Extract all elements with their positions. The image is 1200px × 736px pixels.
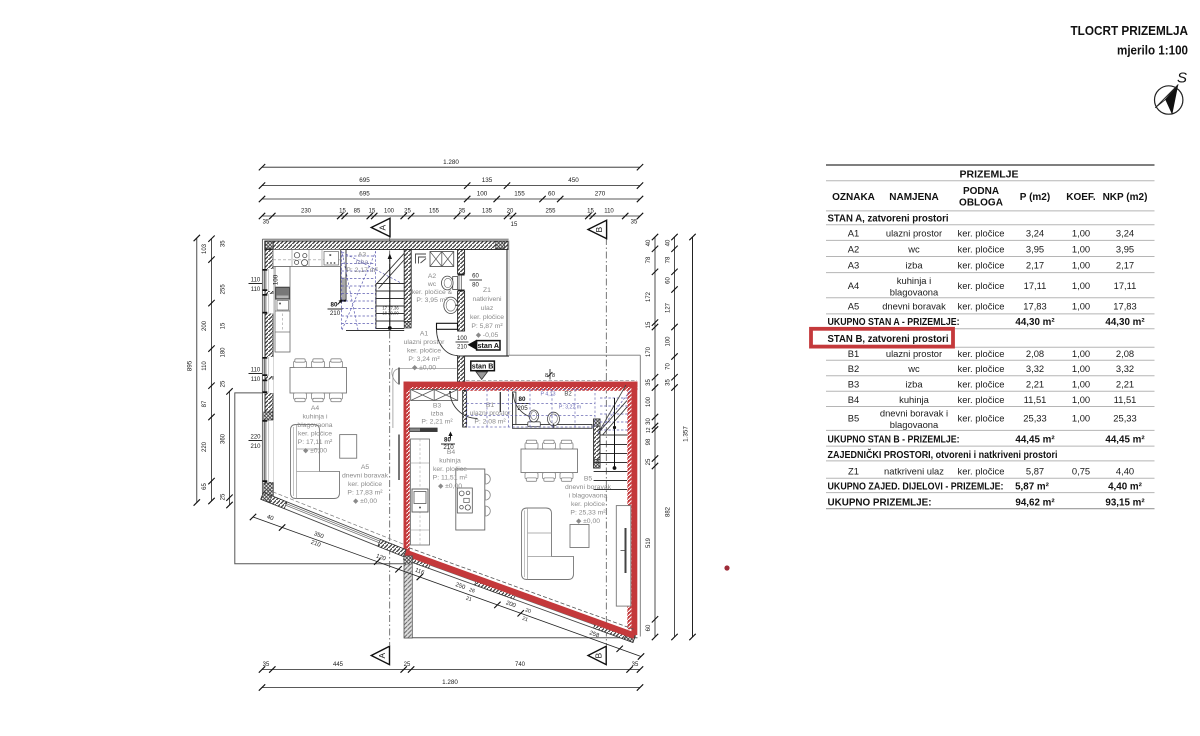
- svg-text:5,87: 5,87: [1026, 466, 1044, 477]
- svg-text:◆ ±0,00: ◆ ±0,00: [353, 498, 377, 505]
- svg-text:25: 25: [221, 493, 227, 500]
- svg-text:35: 35: [263, 662, 270, 668]
- svg-text:P: 3,95 m²: P: 3,95 m²: [416, 297, 448, 304]
- svg-text:A4: A4: [311, 405, 320, 412]
- svg-text:40: 40: [665, 239, 671, 246]
- svg-text:ker. pločice: ker. pločice: [958, 259, 1005, 270]
- svg-text:11,51: 11,51: [1024, 394, 1047, 405]
- svg-text:dnevni boravak: dnevni boravak: [342, 473, 389, 480]
- svg-text:izba: izba: [431, 411, 444, 418]
- svg-text:P: 17,11 m²: P: 17,11 m²: [298, 439, 333, 446]
- svg-text:4,40 m²: 4,40 m²: [1108, 482, 1143, 493]
- svg-text:80: 80: [519, 396, 526, 403]
- svg-text:B3: B3: [433, 403, 442, 410]
- svg-text:2,21: 2,21: [1116, 379, 1134, 390]
- svg-text:wc: wc: [427, 281, 437, 288]
- svg-text:ker. pločice: ker. pločice: [958, 363, 1005, 374]
- svg-text:1.280: 1.280: [443, 159, 459, 166]
- svg-text:kuhinja: kuhinja: [439, 458, 461, 465]
- svg-text:100: 100: [272, 274, 279, 285]
- svg-text:11,51: 11,51: [1114, 394, 1137, 405]
- svg-text:35: 35: [459, 209, 466, 215]
- svg-text:205: 205: [517, 405, 528, 412]
- svg-text:110: 110: [604, 209, 614, 215]
- svg-text:◆ -0,05: ◆ -0,05: [476, 332, 499, 339]
- svg-text:255: 255: [545, 209, 556, 215]
- svg-text:P: 2,17 m²: P: 2,17 m²: [346, 267, 378, 274]
- svg-text:2,17: 2,17: [1116, 259, 1134, 270]
- svg-text:izba: izba: [356, 259, 369, 266]
- svg-text:15: 15: [221, 322, 227, 329]
- svg-text:1,00: 1,00: [1072, 348, 1090, 359]
- svg-text:25: 25: [221, 380, 227, 387]
- svg-text:PODNA: PODNA: [963, 186, 999, 197]
- svg-text:695: 695: [359, 177, 370, 184]
- svg-text:15: 15: [511, 222, 518, 228]
- svg-text:ZAJEDNIČKI PROSTORI, otvoreni: ZAJEDNIČKI PROSTORI, otvoreni i natkrive…: [828, 449, 1058, 461]
- svg-text:695: 695: [359, 191, 370, 198]
- svg-text:740: 740: [515, 662, 526, 668]
- svg-text:15: 15: [369, 209, 376, 215]
- svg-text:kuhinja: kuhinja: [899, 394, 929, 405]
- svg-text:180: 180: [221, 347, 227, 358]
- svg-text:100: 100: [665, 336, 671, 347]
- svg-text:natkriveni ulaz: natkriveni ulaz: [884, 466, 944, 477]
- svg-text:17,83: 17,83: [1113, 301, 1136, 312]
- svg-text:Z1: Z1: [848, 466, 859, 477]
- svg-text:155: 155: [514, 191, 525, 198]
- svg-text:94,62 m²: 94,62 m²: [1015, 497, 1055, 508]
- svg-text:60: 60: [665, 277, 671, 284]
- svg-text:dnevni boravak i: dnevni boravak i: [880, 408, 948, 419]
- svg-text:44,30 m²: 44,30 m²: [1105, 317, 1145, 328]
- svg-text:STAN A, zatvoreni prostori: STAN A, zatvoreni prostori: [828, 214, 949, 225]
- svg-text:stan A: stan A: [478, 342, 499, 350]
- svg-text:80: 80: [472, 283, 479, 289]
- svg-text:1,00: 1,00: [1072, 379, 1090, 390]
- svg-text:3,32: 3,32: [1116, 363, 1134, 374]
- svg-text:ker. pločice: ker. pločice: [958, 466, 1005, 477]
- svg-text:100: 100: [646, 396, 652, 407]
- svg-text:93,15 m²: 93,15 m²: [1105, 497, 1145, 508]
- svg-text:5,87 m²: 5,87 m²: [1015, 482, 1050, 493]
- svg-text:2,08: 2,08: [1026, 348, 1044, 359]
- svg-text:ker. pločice: ker. pločice: [298, 431, 332, 438]
- svg-text:S: S: [1177, 70, 1187, 87]
- svg-text:445: 445: [333, 662, 344, 668]
- svg-text:ker. pločice &: ker. pločice &: [412, 289, 453, 296]
- svg-text:12: 12: [646, 427, 652, 433]
- svg-text:1,00: 1,00: [1072, 413, 1090, 424]
- svg-text:A4: A4: [848, 280, 859, 291]
- svg-text:100: 100: [477, 191, 488, 198]
- svg-text:izba: izba: [905, 259, 923, 270]
- svg-text:103: 103: [202, 243, 208, 254]
- svg-text:2,21: 2,21: [1026, 379, 1044, 390]
- svg-text:ker. pločice: ker. pločice: [958, 348, 1005, 359]
- svg-text:1,00: 1,00: [1072, 228, 1090, 239]
- svg-text:PRIZEMLJE: PRIZEMLJE: [960, 169, 1019, 181]
- svg-text:44,45 m²: 44,45 m²: [1105, 435, 1145, 446]
- svg-text:60: 60: [472, 274, 479, 280]
- svg-text:wc: wc: [907, 243, 920, 254]
- svg-text:wc: wc: [907, 363, 920, 374]
- svg-text:P: 17,83 m²: P: 17,83 m²: [347, 490, 383, 497]
- svg-text:B5: B5: [584, 476, 593, 483]
- svg-text:110: 110: [251, 278, 261, 284]
- svg-text:35: 35: [665, 379, 671, 386]
- svg-text:200: 200: [202, 320, 208, 331]
- svg-text:35: 35: [221, 240, 227, 247]
- svg-text:◆ ±0,00: ◆ ±0,00: [438, 483, 462, 490]
- svg-text:P (m2): P (m2): [1020, 192, 1050, 203]
- svg-text:UKUPNO STAN A - PRIZEMLJE:: UKUPNO STAN A - PRIZEMLJE:: [828, 317, 960, 328]
- svg-text:ker. pločice: ker. pločice: [958, 379, 1005, 390]
- svg-text:TLOCRT PRIZEMLJA: TLOCRT PRIZEMLJA: [1071, 23, 1189, 38]
- svg-text:ker. pločice: ker. pločice: [958, 301, 1005, 312]
- svg-text:ker. pločice: ker. pločice: [958, 280, 1005, 291]
- svg-text:A1: A1: [420, 331, 429, 338]
- svg-text:155: 155: [429, 209, 440, 215]
- svg-text:60: 60: [548, 191, 556, 198]
- svg-text:25,33: 25,33: [1113, 413, 1136, 424]
- svg-text:15: 15: [587, 209, 594, 215]
- svg-text:UKUPNO PRIZEMLJE:: UKUPNO PRIZEMLJE:: [828, 497, 932, 508]
- svg-text:18 29,00: 18 29,00: [382, 311, 399, 316]
- svg-text:8: 8: [552, 373, 555, 379]
- svg-text:35: 35: [646, 379, 652, 386]
- svg-text:A3: A3: [358, 252, 367, 259]
- svg-text:izba: izba: [905, 379, 923, 390]
- svg-text:Z1: Z1: [483, 287, 491, 294]
- svg-text:ker. pločice: ker. pločice: [407, 348, 441, 355]
- svg-text:◆ ±0,00: ◆ ±0,00: [303, 448, 327, 455]
- svg-text:135: 135: [482, 177, 493, 184]
- svg-text:1,00: 1,00: [1072, 394, 1090, 405]
- svg-text:P: 3,22 m: P: 3,22 m: [559, 405, 581, 411]
- svg-text:3,95: 3,95: [1116, 243, 1134, 254]
- svg-text:210: 210: [330, 310, 341, 317]
- svg-text:127: 127: [665, 302, 671, 313]
- svg-text:NAMJENA: NAMJENA: [889, 192, 938, 203]
- svg-text:ker. pločice: ker. pločice: [470, 314, 504, 321]
- svg-text:895: 895: [187, 360, 194, 371]
- svg-text:1,00: 1,00: [1072, 280, 1090, 291]
- svg-text:135: 135: [482, 209, 493, 215]
- svg-text:519: 519: [646, 537, 652, 548]
- svg-text:B1: B1: [848, 348, 859, 359]
- svg-text:OZNAKA: OZNAKA: [832, 192, 875, 203]
- svg-text:100: 100: [457, 336, 468, 342]
- svg-text:172: 172: [646, 291, 652, 302]
- svg-text:i blagovaona: i blagovaona: [569, 493, 608, 500]
- svg-text:1,00: 1,00: [1072, 363, 1090, 374]
- svg-text:3,32: 3,32: [1026, 363, 1044, 374]
- svg-text:1,00: 1,00: [1072, 259, 1090, 270]
- svg-text:1,00: 1,00: [1072, 301, 1090, 312]
- svg-text:B: B: [594, 653, 604, 659]
- svg-text:3,24: 3,24: [1116, 228, 1134, 239]
- svg-text:255: 255: [221, 284, 227, 295]
- svg-text:A1: A1: [848, 228, 859, 239]
- svg-text:ker. pločice: ker. pločice: [958, 228, 1005, 239]
- svg-text:35: 35: [631, 220, 638, 226]
- svg-text:35: 35: [263, 220, 270, 226]
- svg-text:35: 35: [632, 662, 639, 668]
- svg-text:blagovaona: blagovaona: [297, 422, 332, 429]
- svg-text:17,11: 17,11: [1024, 280, 1047, 291]
- svg-text:25: 25: [404, 209, 411, 215]
- svg-text:25: 25: [646, 458, 652, 465]
- svg-text:◆ ±0,00: ◆ ±0,00: [576, 518, 600, 525]
- svg-text:OBLOGA: OBLOGA: [959, 198, 1003, 209]
- svg-text:A5: A5: [848, 301, 859, 312]
- svg-text:◆ ±0,00: ◆ ±0,00: [412, 365, 436, 372]
- svg-text:natkriveni: natkriveni: [472, 296, 502, 303]
- svg-text:A2: A2: [428, 273, 437, 280]
- svg-text:882: 882: [665, 506, 671, 517]
- svg-text:17,11: 17,11: [1114, 280, 1137, 291]
- svg-text:B4: B4: [447, 449, 456, 456]
- svg-text:B3: B3: [848, 379, 859, 390]
- svg-text:dnevni boravak: dnevni boravak: [565, 484, 612, 491]
- svg-text:40: 40: [646, 239, 652, 246]
- svg-text:110: 110: [251, 377, 261, 383]
- svg-text:210: 210: [457, 345, 468, 351]
- svg-text:B2: B2: [564, 392, 572, 398]
- svg-text:110: 110: [202, 361, 208, 371]
- svg-text:8: 8: [545, 373, 548, 379]
- svg-text:A2: A2: [848, 243, 859, 254]
- svg-text:ulazni prostor: ulazni prostor: [886, 348, 942, 359]
- svg-text:ulazni prostor: ulazni prostor: [404, 339, 446, 346]
- svg-text:ulazni prostor: ulazni prostor: [886, 228, 942, 239]
- svg-text:170: 170: [646, 346, 652, 357]
- svg-text:1.357: 1.357: [683, 426, 690, 442]
- svg-text:1,00: 1,00: [1072, 243, 1090, 254]
- svg-text:stan B: stan B: [472, 363, 494, 371]
- svg-text:B4: B4: [848, 394, 859, 405]
- svg-text:dnevni boravak: dnevni boravak: [882, 301, 946, 312]
- svg-text:220: 220: [250, 435, 261, 441]
- svg-text:110: 110: [251, 287, 261, 293]
- svg-text:98: 98: [646, 438, 652, 445]
- svg-text:P: 5,87 m²: P: 5,87 m²: [471, 323, 503, 330]
- svg-text:270: 270: [595, 191, 606, 198]
- svg-text:B5: B5: [848, 413, 859, 424]
- svg-text:360: 360: [221, 433, 227, 444]
- svg-text:85: 85: [354, 209, 361, 215]
- svg-text:87: 87: [202, 400, 208, 407]
- svg-text:78: 78: [646, 256, 652, 263]
- svg-text:kuhinja i: kuhinja i: [303, 414, 328, 421]
- svg-text:NKP (m2): NKP (m2): [1103, 192, 1148, 203]
- svg-text:ulaz: ulaz: [481, 305, 494, 312]
- svg-text:ker. pločice: ker. pločice: [958, 243, 1005, 254]
- svg-text:A: A: [377, 653, 387, 659]
- svg-text:ker. pločice: ker. pločice: [958, 394, 1005, 405]
- svg-text:0,75: 0,75: [1072, 466, 1090, 477]
- svg-text:ker. pločice: ker. pločice: [958, 413, 1005, 424]
- svg-text:ker. pločice: ker. pločice: [571, 501, 605, 508]
- svg-text:ker. pločice: ker. pločice: [433, 466, 467, 473]
- svg-text:P: 11,51 m²: P: 11,51 m²: [433, 475, 468, 482]
- svg-text:3,24: 3,24: [1026, 228, 1044, 239]
- svg-text:230: 230: [301, 209, 312, 215]
- svg-text:blagovaona: blagovaona: [890, 287, 939, 298]
- svg-text:60: 60: [646, 624, 652, 631]
- svg-text:220: 220: [202, 441, 208, 452]
- svg-text:KOEF.: KOEF.: [1066, 192, 1096, 203]
- svg-text:78: 78: [665, 256, 671, 263]
- svg-text:kuhinja i: kuhinja i: [897, 275, 931, 286]
- svg-text:4,40: 4,40: [1116, 466, 1134, 477]
- svg-text:UKUPNO ZAJED. DIJELOVI - PRIZE: UKUPNO ZAJED. DIJELOVI - PRIZEMLJE:: [828, 482, 1004, 493]
- svg-text:1.280: 1.280: [442, 679, 458, 686]
- svg-text:A3: A3: [848, 259, 859, 270]
- svg-text:210: 210: [250, 444, 261, 450]
- svg-text:B2: B2: [848, 363, 859, 374]
- svg-text:25,33: 25,33: [1023, 413, 1046, 424]
- svg-text:17,83: 17,83: [1023, 301, 1046, 312]
- svg-text:STAN B, zatvoreni prostori: STAN B, zatvoreni prostori: [828, 334, 949, 345]
- svg-text:65: 65: [202, 483, 208, 490]
- svg-text:15: 15: [646, 321, 652, 328]
- svg-text:blagovaona: blagovaona: [890, 419, 939, 430]
- svg-text:100: 100: [384, 209, 395, 215]
- svg-text:80: 80: [331, 302, 338, 309]
- svg-text:44,30 m²: 44,30 m²: [1015, 317, 1055, 328]
- svg-text:P: 2,08 m²: P: 2,08 m²: [474, 419, 506, 426]
- svg-text:P: 3,24 m²: P: 3,24 m²: [408, 356, 440, 363]
- svg-text:P 4,13: P 4,13: [541, 392, 556, 398]
- svg-text:20: 20: [507, 209, 514, 215]
- svg-text:B: B: [594, 227, 604, 233]
- svg-text:110: 110: [251, 368, 261, 374]
- svg-text:P: 25,33 m²: P: 25,33 m²: [570, 510, 606, 517]
- svg-text:70: 70: [665, 363, 671, 370]
- svg-text:2,17: 2,17: [1026, 259, 1044, 270]
- svg-text:A: A: [377, 225, 387, 231]
- svg-text:2,08: 2,08: [1116, 348, 1134, 359]
- svg-text:P: 2,21 m²: P: 2,21 m²: [421, 419, 453, 426]
- svg-text:25: 25: [404, 662, 411, 668]
- svg-text:3,95: 3,95: [1026, 243, 1044, 254]
- svg-text:UKUPNO STAN B - PRIZEMLJE:: UKUPNO STAN B - PRIZEMLJE:: [828, 435, 960, 446]
- svg-text:ulazni prostor: ulazni prostor: [470, 410, 512, 417]
- svg-text:ker. pločice: ker. pločice: [348, 481, 382, 488]
- svg-text:mjerilo 1:100: mjerilo 1:100: [1117, 44, 1188, 58]
- svg-text:15: 15: [339, 209, 346, 215]
- svg-text:44,45 m²: 44,45 m²: [1015, 435, 1055, 446]
- svg-text:450: 450: [568, 177, 579, 184]
- svg-text:A5: A5: [361, 464, 370, 471]
- svg-text:30: 30: [646, 418, 652, 425]
